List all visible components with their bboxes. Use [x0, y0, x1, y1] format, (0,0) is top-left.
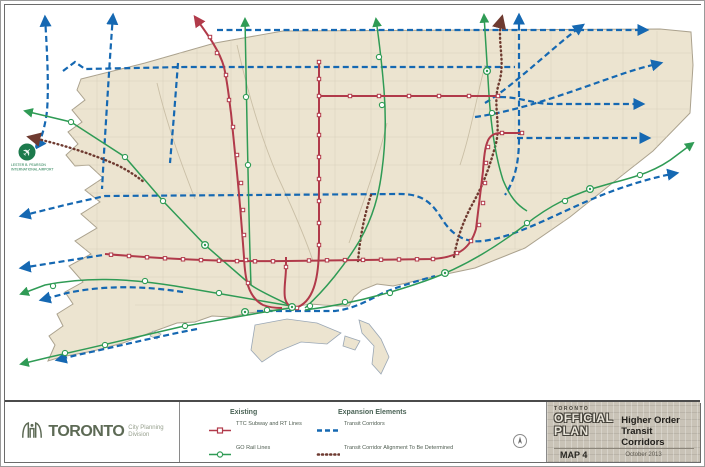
- legend: Existing TTC Subway and RT Lines GO Rail…: [180, 402, 546, 462]
- official-plan-wordmark: OFFICIAL PLAN: [554, 412, 616, 438]
- city-logo-wordmark: TORONTO: [48, 423, 124, 441]
- city-hall-icon: [20, 420, 44, 444]
- corridor-dash-icon: [316, 421, 340, 439]
- city-division-label: City Planning Division: [128, 425, 163, 439]
- city-logo-block: TORONTO City Planning Division: [5, 402, 180, 462]
- airport-icon: ✈: [18, 143, 36, 161]
- title-block: TORONTO OFFICIAL PLAN Higher Order Trans…: [546, 402, 700, 462]
- map-title: Higher Order Transit Corridors: [621, 406, 694, 448]
- legend-label: Transit Corridor Alignment To Be Determi…: [344, 445, 453, 451]
- legend-expansion: Expansion Elements Transit Corridors Tra…: [316, 407, 516, 462]
- legend-expansion-title: Expansion Elements: [338, 409, 516, 416]
- map-number: MAP 4: [560, 450, 587, 460]
- legend-existing: Existing TTC Subway and RT Lines GO Rail…: [208, 407, 316, 462]
- map-date: October 2013: [625, 452, 661, 458]
- airport-label-2: INTERNATIONAL AIRPORT: [11, 168, 54, 172]
- tbd-dots-icon: [316, 445, 340, 463]
- north-arrow-icon: [512, 433, 528, 454]
- footer: TORONTO City Planning Division Existing …: [5, 400, 700, 462]
- legend-label: Transit Corridors: [344, 421, 385, 427]
- toronto-transit-map: ✈ LESTER B. PEARSON INTERNATIONAL AIRPOR…: [5, 5, 702, 403]
- ttc-line-icon: [208, 421, 232, 439]
- map-sheet: ✈ LESTER B. PEARSON INTERNATIONAL AIRPOR…: [0, 0, 705, 467]
- legend-label: GO Rail Lines: [236, 445, 270, 451]
- airport-label-1: LESTER B. PEARSON: [11, 163, 46, 167]
- legend-label: TTC Subway and RT Lines: [236, 421, 302, 427]
- map-area: ✈ LESTER B. PEARSON INTERNATIONAL AIRPOR…: [5, 5, 702, 403]
- legend-existing-title: Existing: [230, 409, 316, 416]
- go-line-icon: [208, 445, 232, 463]
